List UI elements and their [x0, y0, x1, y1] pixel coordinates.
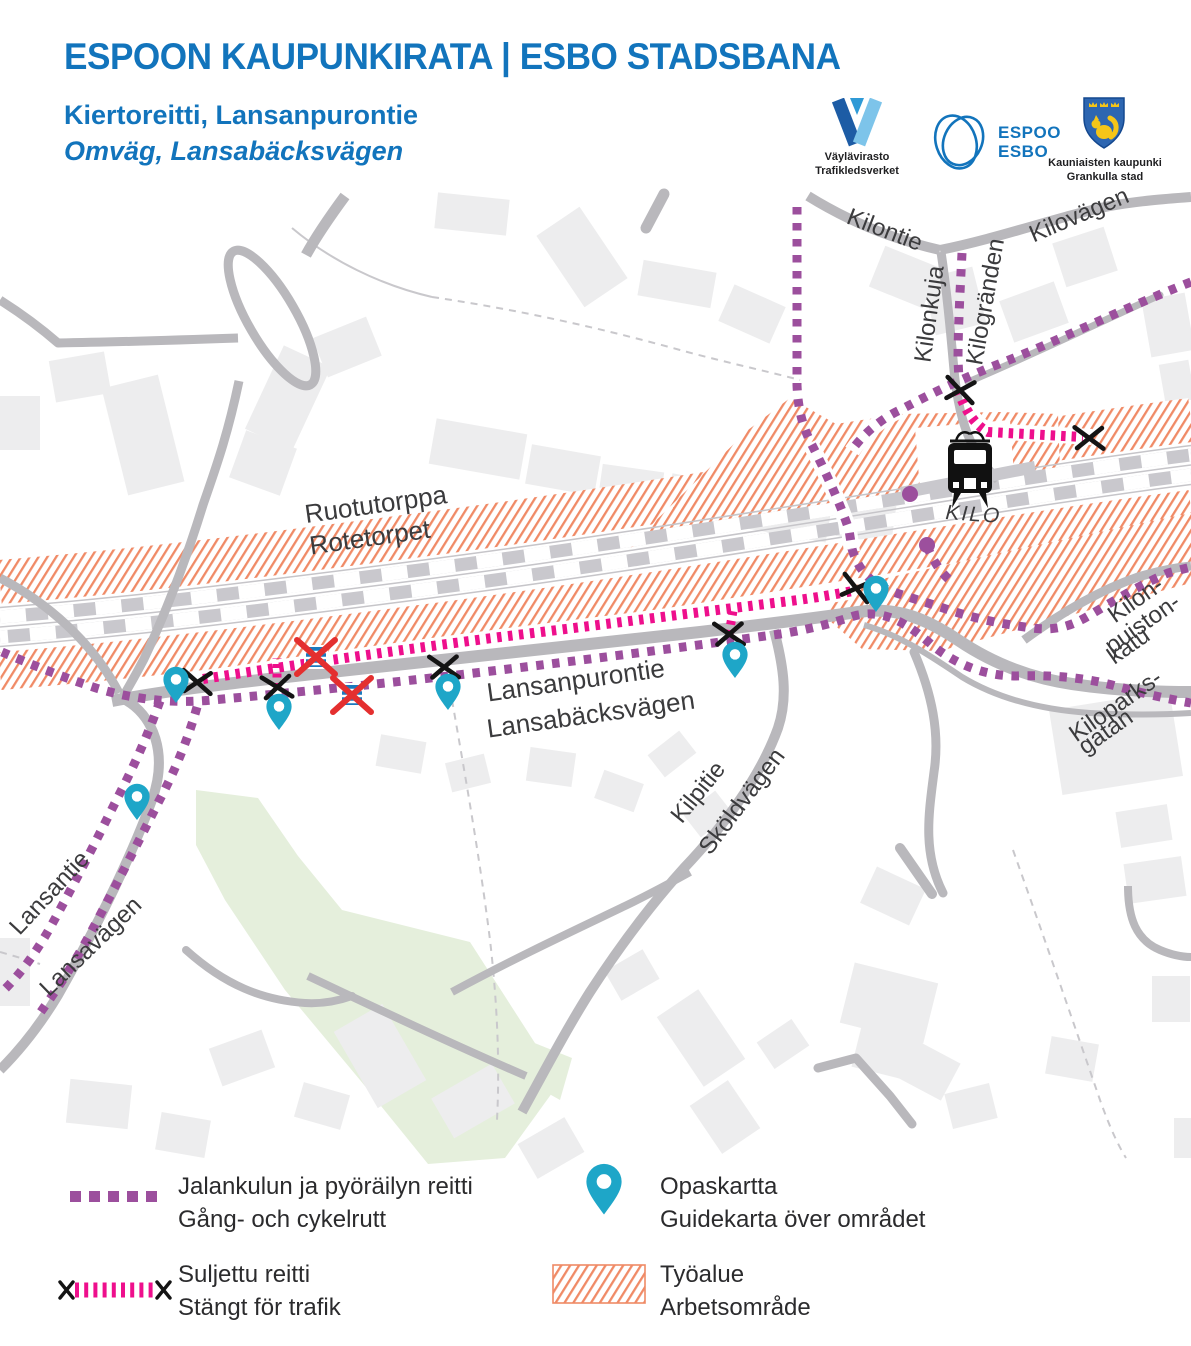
kauniainen-logo-icon: [1082, 96, 1126, 150]
building: [648, 731, 697, 778]
building: [376, 734, 427, 774]
building: [66, 1079, 132, 1129]
road: [0, 300, 238, 343]
building: [1152, 976, 1190, 1022]
detour-map-poster: KilontieKilovägenKilonkujaKilogrändenRuo…: [0, 0, 1191, 1346]
route-endpoint-dot: [919, 537, 935, 553]
building: [445, 754, 491, 793]
road: [0, 698, 159, 1070]
road: [646, 194, 664, 228]
street-label-kilo-station: KILO: [945, 501, 1002, 528]
building: [1123, 856, 1186, 904]
building: [1174, 1118, 1191, 1158]
building: [999, 281, 1069, 342]
closed-crossing-icon: [333, 678, 371, 712]
guide-map-pin: [435, 674, 460, 710]
road: [306, 196, 345, 255]
espoo-logo-icon: [928, 108, 990, 176]
building: [637, 260, 716, 308]
building: [757, 1019, 810, 1069]
footpath: [1013, 850, 1126, 1158]
building: [944, 1083, 997, 1129]
building: [429, 418, 528, 479]
building: [209, 1030, 275, 1087]
building: [690, 1080, 761, 1154]
park-areas-layer: [196, 790, 572, 1164]
building: [294, 1082, 350, 1130]
street-label-lansantie: Lansantie: [4, 846, 95, 941]
building: [594, 770, 644, 813]
building: [0, 396, 40, 450]
road: [914, 652, 943, 893]
page-title: ESPOON KAUPUNKIRATA | ESBO STADSBANA: [64, 36, 840, 78]
guide-map-pin: [266, 694, 291, 730]
guide-map-pin: [722, 642, 747, 678]
building: [49, 351, 111, 402]
building: [718, 284, 785, 343]
building: [526, 747, 576, 787]
kauniainen-logo-caption: Kauniaisten kaupunkiGrankulla stad: [1040, 156, 1170, 184]
building: [536, 207, 627, 307]
building: [102, 375, 185, 496]
building: [1159, 360, 1191, 405]
building: [1116, 804, 1173, 848]
vaylavirasto-logo-caption: VäylävirastoTrafikledsverket: [792, 150, 922, 178]
vaylavirasto-logo-icon: [830, 98, 884, 150]
building: [434, 192, 509, 235]
subtitle-fi: Kiertoreitti, Lansanpurontie: [64, 100, 418, 131]
map-canvas: KilontieKilovägenKilonkujaKilogrändenRuo…: [0, 0, 1191, 1346]
building: [525, 444, 601, 496]
building: [657, 989, 745, 1087]
subtitle-sv: Omväg, Lansabäcksvägen: [64, 136, 403, 167]
building: [155, 1112, 211, 1158]
route-endpoint-dot: [902, 486, 918, 502]
